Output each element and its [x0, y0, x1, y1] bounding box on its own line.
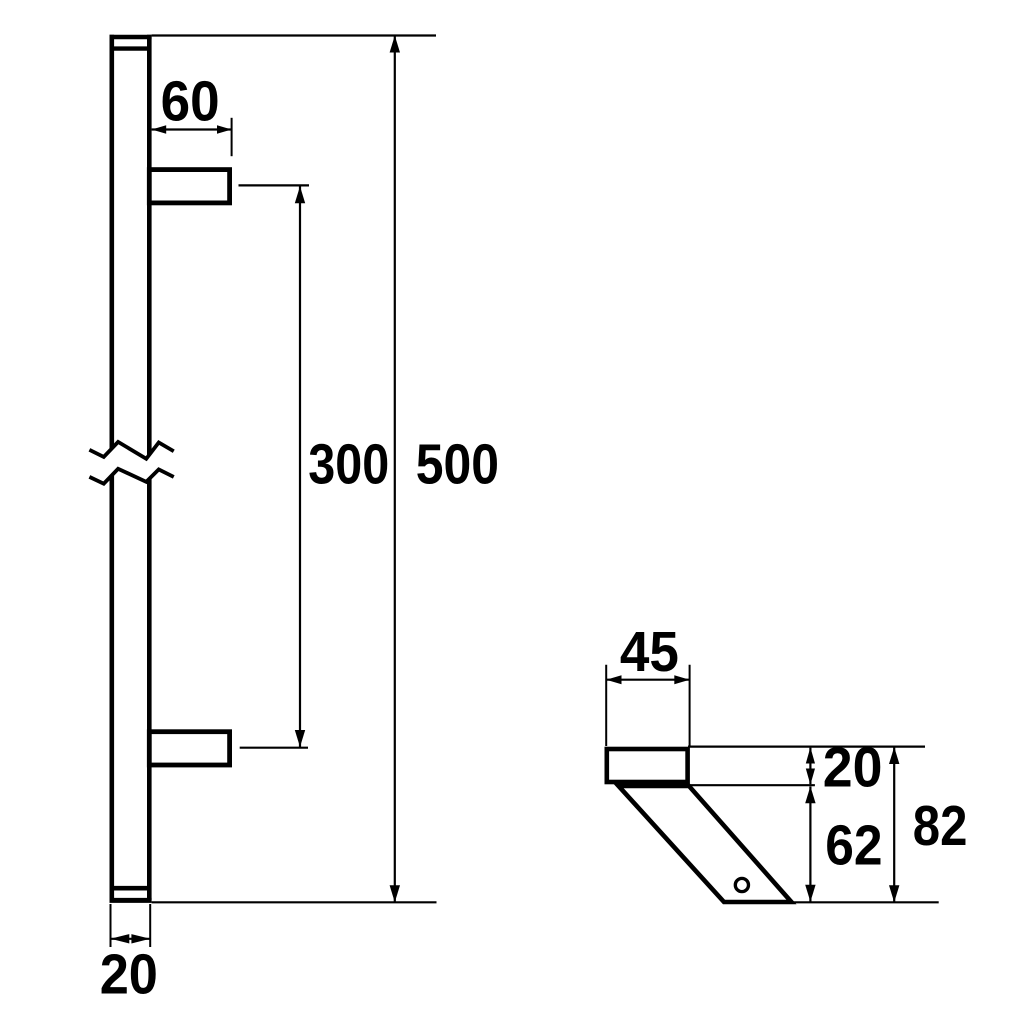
svg-text:60: 60 [161, 70, 220, 134]
svg-text:20: 20 [823, 736, 883, 800]
svg-text:82: 82 [913, 794, 968, 858]
svg-text:45: 45 [620, 620, 679, 684]
svg-text:500: 500 [416, 433, 499, 497]
svg-text:20: 20 [100, 943, 158, 1007]
svg-text:62: 62 [825, 814, 882, 878]
svg-text:300: 300 [308, 433, 389, 497]
